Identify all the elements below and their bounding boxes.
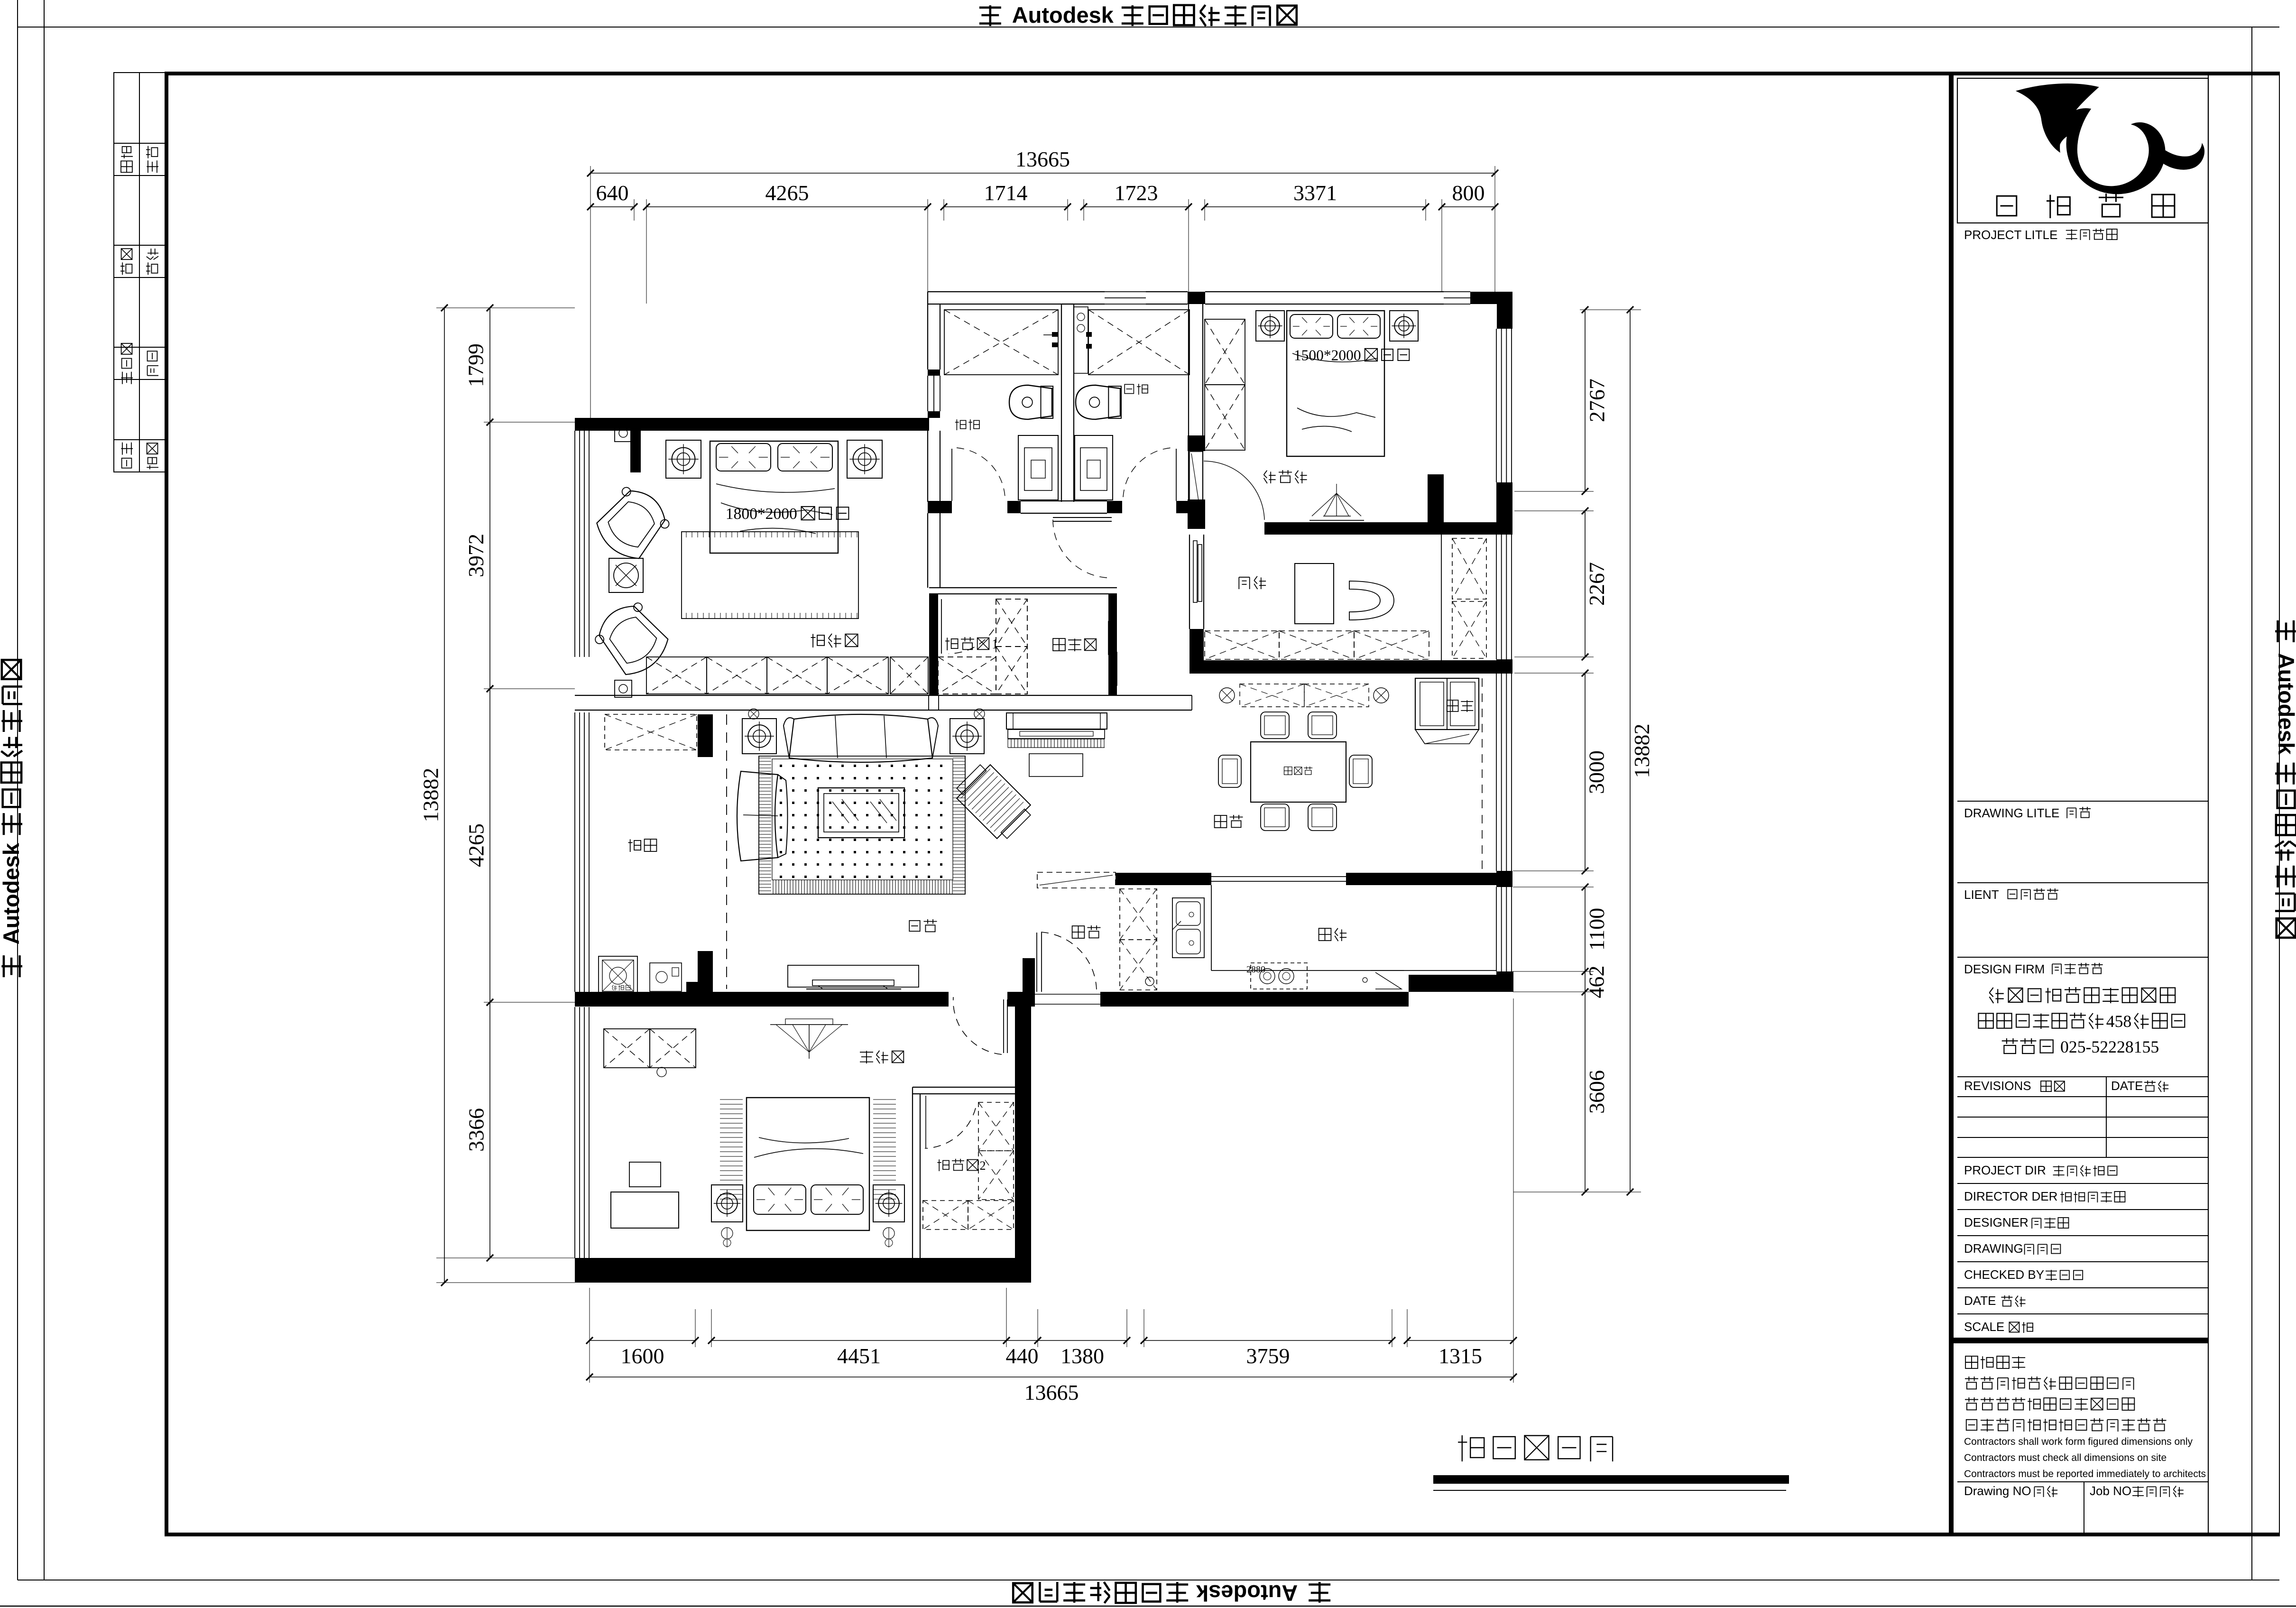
svg-text:PROJECT DIR: PROJECT DIR <box>1964 1163 2046 1177</box>
svg-text:2767: 2767 <box>1585 379 1609 422</box>
svg-text:1799: 1799 <box>464 343 488 387</box>
svg-text:440: 440 <box>1006 1344 1039 1368</box>
svg-text:1723: 1723 <box>1115 181 1158 205</box>
svg-text:SCALE: SCALE <box>1964 1320 2004 1334</box>
svg-text:Contractors must check all dim: Contractors must check all dimensions on… <box>1964 1452 2167 1463</box>
svg-text:Job NO: Job NO <box>2090 1484 2131 1498</box>
svg-text:3606: 3606 <box>1585 1070 1609 1114</box>
svg-text:3759: 3759 <box>1246 1344 1290 1368</box>
svg-text:PROJECT LITLE: PROJECT LITLE <box>1964 228 2057 242</box>
svg-text:13665: 13665 <box>1015 147 1070 171</box>
svg-text:13665: 13665 <box>1024 1380 1079 1405</box>
svg-text:DATE: DATE <box>1964 1294 1996 1308</box>
svg-text:Autodesk: Autodesk <box>2274 653 2296 755</box>
svg-text:1315: 1315 <box>1438 1344 1482 1368</box>
svg-text:Autodesk: Autodesk <box>1012 2 1114 28</box>
svg-text:Drawing NO: Drawing NO <box>1964 1484 2031 1498</box>
svg-text:Contractors shall work form fi: Contractors shall work form figured dime… <box>1964 1436 2193 1447</box>
svg-text:3371: 3371 <box>1293 181 1337 205</box>
svg-text:1800*2000: 1800*2000 <box>726 505 797 523</box>
svg-text:458: 458 <box>2106 1012 2132 1031</box>
svg-text:3000: 3000 <box>1585 750 1609 794</box>
svg-text:DATE: DATE <box>2111 1079 2143 1093</box>
svg-text:CHECKED BY: CHECKED BY <box>1964 1267 2044 1282</box>
svg-text:025-52228155: 025-52228155 <box>2060 1037 2159 1056</box>
svg-text:3366: 3366 <box>464 1108 489 1152</box>
svg-text:4451: 4451 <box>837 1344 881 1368</box>
svg-text:13882: 13882 <box>419 768 443 822</box>
svg-text:1600: 1600 <box>621 1344 664 1368</box>
svg-text:1380: 1380 <box>1060 1344 1104 1368</box>
svg-text:DRAWING LITLE: DRAWING LITLE <box>1964 806 2059 820</box>
svg-text:1500*2000: 1500*2000 <box>1294 347 1361 363</box>
svg-text:4265: 4265 <box>464 823 489 867</box>
svg-text:2267: 2267 <box>1585 562 1609 606</box>
svg-text:640: 640 <box>596 181 629 205</box>
svg-text:3972: 3972 <box>464 534 488 577</box>
svg-text:4265: 4265 <box>765 181 809 205</box>
svg-text:DIRECTOR DER: DIRECTOR DER <box>1964 1189 2057 1203</box>
svg-text:2880: 2880 <box>1246 964 1265 975</box>
svg-text:Contractors must be reported i: Contractors must be reported immediately… <box>1964 1469 2206 1479</box>
svg-text:DRAWING: DRAWING <box>1964 1241 2023 1256</box>
svg-text:Autodesk: Autodesk <box>0 842 24 944</box>
svg-text:13882: 13882 <box>1630 724 1654 778</box>
svg-text:LIENT: LIENT <box>1964 887 1999 902</box>
svg-text:REVISIONS: REVISIONS <box>1964 1079 2031 1093</box>
svg-text:800: 800 <box>1452 181 1485 205</box>
svg-text:DESIGNER: DESIGNER <box>1964 1215 2029 1229</box>
svg-text:462: 462 <box>1585 966 1609 998</box>
svg-text:1100: 1100 <box>1585 908 1609 951</box>
svg-text:2: 2 <box>980 1159 986 1173</box>
svg-text:DESIGN FIRM: DESIGN FIRM <box>1964 962 2045 976</box>
svg-text:1: 1 <box>992 637 998 652</box>
svg-text:1714: 1714 <box>984 181 1028 205</box>
svg-text:Autodesk: Autodesk <box>1196 1580 1298 1606</box>
